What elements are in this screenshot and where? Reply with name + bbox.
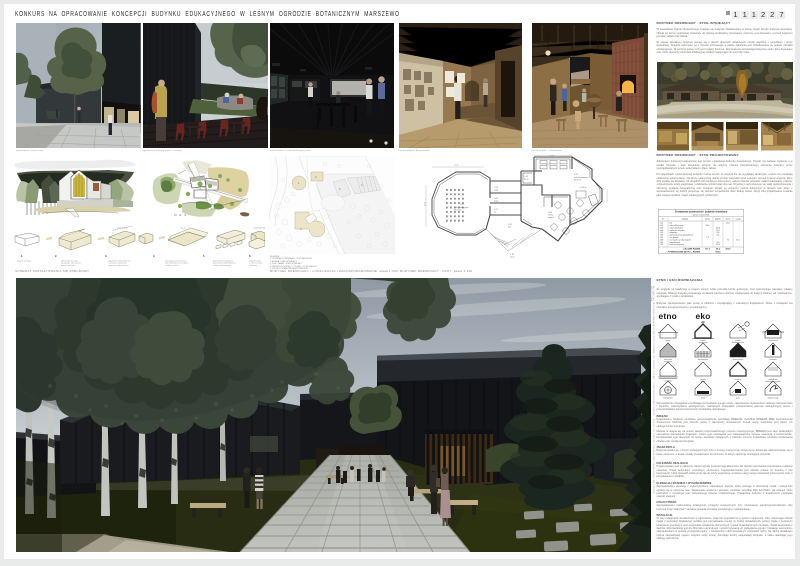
- svg-text:hol: hol: [508, 227, 511, 229]
- svg-text:46,2 m2: 46,2 m2: [454, 210, 462, 212]
- svg-text:taras zewnętrzny: taras zewnętrzny: [670, 243, 684, 246]
- svg-text:i nakrycie całości: i nakrycie całości: [165, 264, 179, 267]
- svg-text:4.: 4.: [153, 254, 155, 258]
- svg-text:jadalni: jadalni: [547, 217, 554, 219]
- svg-text:strefa wejścia: strefa wejścia: [117, 227, 128, 230]
- svg-text:kominek: kominek: [769, 359, 776, 361]
- svg-text:taras: taras: [510, 256, 514, 259]
- svg-text:detal: detal: [701, 397, 706, 400]
- svg-text:7,1: 7,1: [727, 239, 730, 241]
- svg-text:energooszczędne: energooszczędne: [766, 380, 781, 383]
- svg-text:materiały: materiały: [664, 360, 672, 363]
- svg-text:budynek istniejący: budynek istniejący: [17, 260, 31, 263]
- svg-text:gont: gont: [736, 397, 740, 400]
- svg-text:tworzących podział funkcji: tworzących podział funkcji: [108, 264, 129, 267]
- svg-text:3.: 3.: [105, 254, 107, 258]
- svg-text:gosp.: gosp.: [524, 179, 529, 181]
- svg-text:powierzchnia [m2]: powierzchnia [m2]: [693, 215, 710, 217]
- svg-text:1.03: 1.03: [574, 174, 579, 176]
- svg-text:nr: nr: [662, 218, 664, 220]
- svg-text:1.10: 1.10: [660, 244, 664, 246]
- svg-text:rekuperacja: rekuperacja: [768, 339, 779, 342]
- svg-text:strefa: strefa: [548, 214, 554, 217]
- svg-text:2.: 2.: [315, 175, 317, 179]
- svg-text:ŁĄCZNIE RAZEM: ŁĄCZNIE RAZEM: [684, 248, 701, 251]
- svg-text:Zestawienie powierzchni i budy: Zestawienie powierzchni i budynek drewni…: [675, 211, 728, 214]
- svg-text:+ 0,00 m: + 0,00 m: [579, 187, 587, 189]
- svg-text:9,60: 9,60: [550, 155, 554, 157]
- svg-text:7,3: 7,3: [706, 237, 709, 239]
- svg-text:6,1: 6,1: [717, 235, 720, 237]
- svg-text:forma: forma: [666, 339, 672, 342]
- svg-text:deskowanie: deskowanie: [698, 359, 708, 361]
- svg-text:205,5: 205,5: [715, 252, 721, 254]
- svg-text:12,40: 12,40: [454, 165, 459, 167]
- svg-text:mag.: mag.: [494, 200, 499, 202]
- svg-text:zestawienie brył: zestawienie brył: [253, 227, 265, 230]
- svg-text:4.: 4.: [361, 183, 363, 187]
- svg-text:3.: 3.: [300, 227, 302, 231]
- svg-text:archetyp: archetyp: [664, 379, 671, 382]
- svg-text:5.: 5.: [339, 187, 341, 191]
- svg-text:1.: 1.: [298, 181, 300, 185]
- svg-text:32,4: 32,4: [716, 244, 720, 246]
- svg-text:zabudowy: zabudowy: [249, 265, 257, 267]
- svg-text:uwagi: uwagi: [736, 218, 742, 220]
- svg-text:24,5: 24,5: [726, 223, 730, 225]
- svg-text:6.: 6.: [249, 254, 251, 258]
- svg-text:odzysk wody: odzysk wody: [768, 398, 779, 400]
- svg-text:piktogramy: piktogramy: [663, 397, 672, 400]
- svg-text:trwałość: trwałość: [735, 378, 742, 381]
- svg-text:21,5: 21,5: [736, 239, 740, 241]
- svg-text:46,2: 46,2: [706, 225, 710, 227]
- svg-text:nazwa: nazwa: [682, 218, 689, 220]
- svg-text:5.: 5.: [203, 254, 205, 258]
- svg-text:1.: 1.: [21, 254, 23, 258]
- svg-text:1.02: 1.02: [460, 204, 465, 206]
- svg-text:POWIERZCHNIA NETTO + RAZEM: POWIERZCHNIA NETTO + RAZEM: [668, 251, 701, 254]
- svg-text:budynku edukacyjnego: budynku edukacyjnego: [213, 265, 231, 267]
- svg-text:107,3: 107,3: [705, 249, 711, 251]
- svg-text:istniej.: istniej.: [705, 217, 711, 220]
- svg-text:10,20: 10,20: [424, 202, 426, 207]
- svg-text:44,8 m2: 44,8 m2: [574, 180, 582, 182]
- svg-text:ciemny kolor: ciemny kolor: [733, 358, 744, 361]
- svg-text:projekt.: projekt.: [715, 217, 722, 220]
- svg-text:fotowoltaiczne: fotowoltaiczne: [732, 341, 744, 344]
- svg-text:wc: wc: [494, 211, 496, 213]
- svg-text:2.: 2.: [55, 254, 57, 258]
- svg-text:dach: dach: [181, 228, 185, 230]
- svg-text:wentylacja: wentylacja: [699, 341, 709, 344]
- svg-text:więcej przestrzeni: więcej przestrzeni: [61, 264, 76, 267]
- svg-text:205,5: 205,5: [725, 249, 731, 251]
- svg-text:M E S: M E S: [174, 213, 187, 217]
- svg-text:zapl.: zapl.: [494, 190, 499, 192]
